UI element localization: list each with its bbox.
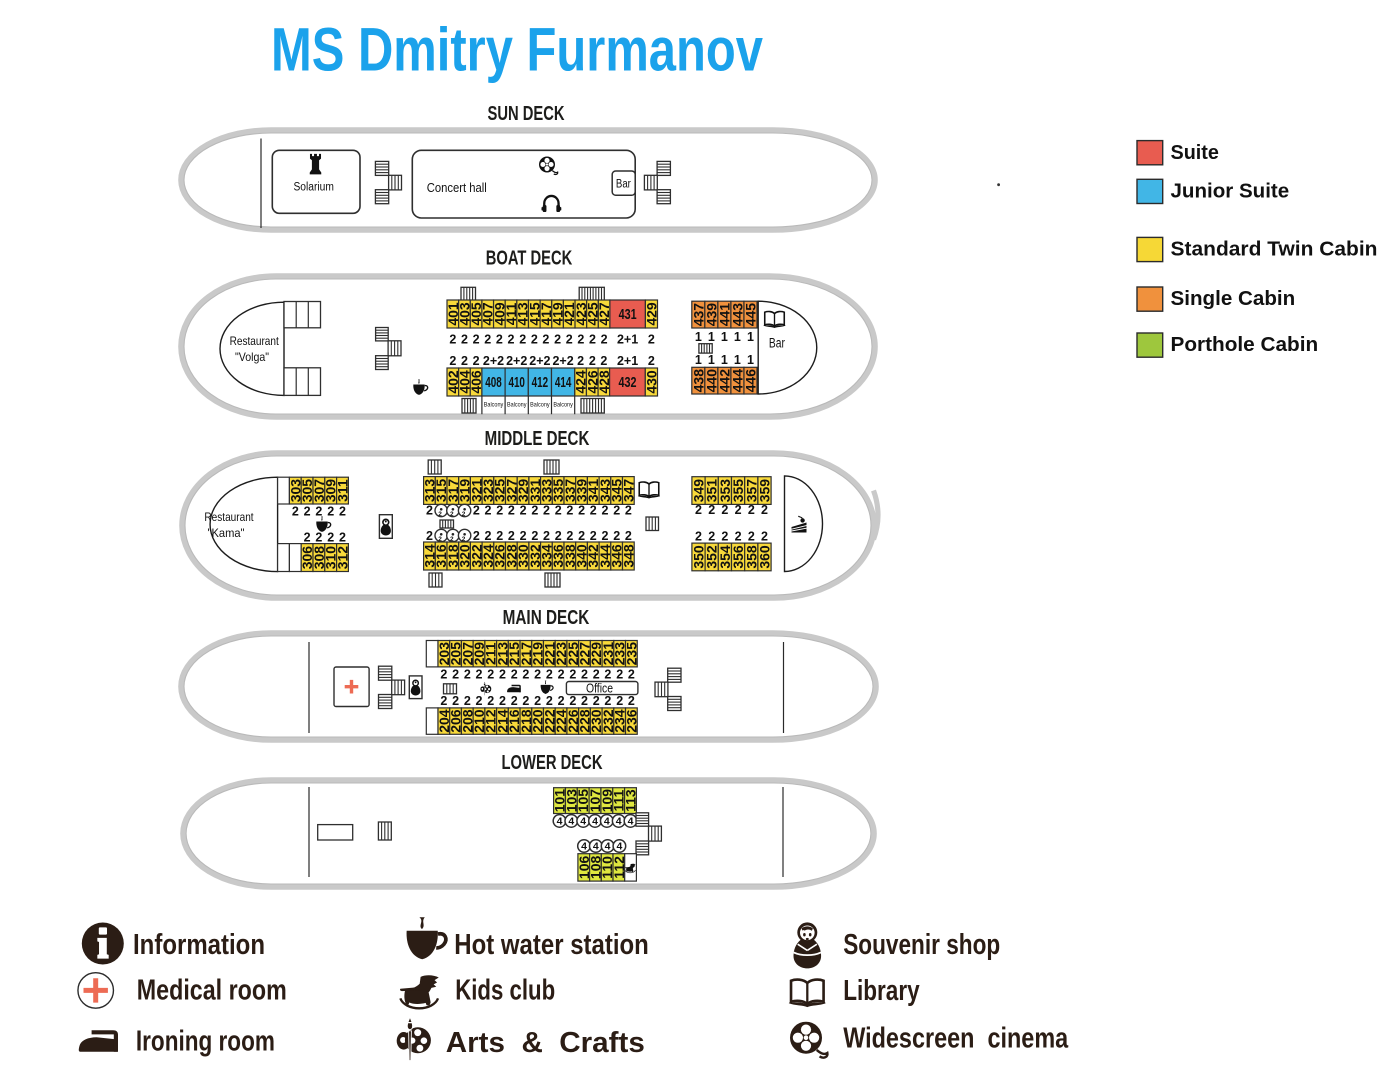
- svg-text:2+2: 2+2: [529, 354, 550, 368]
- svg-text:236: 236: [623, 709, 639, 733]
- svg-text:2: 2: [625, 529, 632, 543]
- svg-text:4: 4: [593, 841, 599, 853]
- svg-text:2: 2: [578, 529, 585, 543]
- svg-text:2: 2: [339, 531, 346, 545]
- svg-text:2: 2: [577, 333, 584, 347]
- svg-text:Restaurant: Restaurant: [204, 510, 254, 524]
- svg-text:Library: Library: [843, 975, 920, 1007]
- svg-text:408: 408: [485, 375, 502, 391]
- svg-text:2: 2: [426, 529, 433, 543]
- svg-text:2+1: 2+1: [617, 333, 638, 347]
- svg-text:2: 2: [327, 531, 334, 545]
- svg-text:2: 2: [555, 504, 562, 518]
- svg-text:2: 2: [499, 694, 506, 708]
- svg-text:430: 430: [643, 370, 659, 394]
- svg-text:1: 1: [734, 353, 741, 367]
- svg-text:4: 4: [592, 816, 598, 828]
- svg-text:2+1: 2+1: [617, 354, 638, 368]
- svg-text:2: 2: [304, 531, 311, 545]
- svg-text:Junior Suite: Junior Suite: [1171, 181, 1290, 203]
- svg-text:2: 2: [748, 530, 755, 544]
- svg-text:2: 2: [613, 529, 620, 543]
- svg-text:2: 2: [531, 529, 538, 543]
- svg-text:4: 4: [616, 841, 622, 853]
- svg-text:2: 2: [569, 668, 576, 682]
- svg-text:1: 1: [734, 330, 741, 344]
- svg-text:Ironing room: Ironing room: [136, 1025, 275, 1057]
- svg-text:2: 2: [593, 694, 600, 708]
- svg-text:1: 1: [747, 353, 754, 367]
- svg-text:Suite: Suite: [1171, 142, 1219, 164]
- svg-text:2: 2: [496, 529, 503, 543]
- svg-text:2: 2: [577, 354, 584, 368]
- svg-text:2: 2: [511, 694, 518, 708]
- svg-text:4: 4: [616, 816, 622, 828]
- svg-text:2: 2: [315, 531, 322, 545]
- svg-text:2: 2: [464, 694, 471, 708]
- svg-text:Concert hall: Concert hall: [427, 180, 487, 195]
- svg-text:Kids club: Kids club: [455, 974, 555, 1006]
- svg-text:2: 2: [590, 504, 597, 518]
- svg-text:2: 2: [648, 333, 655, 347]
- svg-text:235: 235: [623, 642, 639, 666]
- svg-text:Widescreen cinema: Widescreen cinema: [843, 1023, 1069, 1055]
- svg-text:2: 2: [440, 694, 447, 708]
- svg-text:312: 312: [335, 546, 351, 570]
- svg-text:Solarium: Solarium: [293, 181, 334, 193]
- svg-text:429: 429: [643, 302, 659, 326]
- svg-text:4: 4: [628, 816, 634, 828]
- svg-text:2: 2: [508, 504, 515, 518]
- svg-text:2: 2: [464, 668, 471, 682]
- svg-text:2: 2: [452, 694, 459, 708]
- svg-text:2: 2: [496, 333, 503, 347]
- svg-text:2: 2: [292, 505, 299, 519]
- svg-text:2: 2: [628, 668, 635, 682]
- svg-text:2: 2: [625, 504, 632, 518]
- svg-text:410: 410: [508, 375, 525, 391]
- svg-text:2: 2: [440, 668, 447, 682]
- svg-text:2: 2: [566, 333, 573, 347]
- svg-text:2: 2: [721, 503, 728, 517]
- svg-text:2: 2: [648, 354, 655, 368]
- svg-text:2: 2: [522, 668, 529, 682]
- svg-text:"Kama": "Kama": [208, 526, 245, 540]
- svg-text:MAIN DECK: MAIN DECK: [503, 607, 590, 629]
- svg-text:2: 2: [452, 668, 459, 682]
- svg-text:2: 2: [761, 530, 768, 544]
- svg-text:LOWER DECK: LOWER DECK: [502, 752, 603, 774]
- svg-text:2: 2: [581, 694, 588, 708]
- svg-text:432: 432: [619, 375, 637, 391]
- svg-text:2: 2: [555, 529, 562, 543]
- svg-text:Hot water station: Hot water station: [454, 929, 649, 961]
- svg-text:2: 2: [546, 668, 553, 682]
- svg-text:2: 2: [695, 530, 702, 544]
- svg-text:2: 2: [327, 505, 334, 519]
- svg-text:2: 2: [485, 529, 492, 543]
- svg-text:2: 2: [602, 529, 609, 543]
- svg-text:2: 2: [628, 694, 635, 708]
- svg-text:2: 2: [601, 333, 608, 347]
- svg-text:1: 1: [721, 353, 728, 367]
- svg-text:Restaurant: Restaurant: [230, 334, 280, 348]
- svg-text:2: 2: [589, 333, 596, 347]
- svg-text:2: 2: [487, 694, 494, 708]
- svg-text:Balcony: Balcony: [553, 402, 573, 409]
- svg-text:4: 4: [580, 816, 586, 828]
- svg-text:2: 2: [546, 694, 553, 708]
- svg-text:2: 2: [566, 504, 573, 518]
- svg-text:2+2: 2+2: [552, 354, 573, 368]
- svg-text:2+2: 2+2: [506, 354, 527, 368]
- svg-text:Balcony: Balcony: [507, 402, 527, 409]
- svg-text:2: 2: [461, 354, 468, 368]
- svg-text:SUN DECK: SUN DECK: [488, 103, 565, 125]
- svg-text:2: 2: [426, 504, 433, 518]
- svg-text:2: 2: [558, 668, 565, 682]
- svg-text:2: 2: [499, 668, 506, 682]
- svg-text:2: 2: [554, 333, 561, 347]
- svg-text:2: 2: [735, 530, 742, 544]
- svg-text:Bar: Bar: [616, 179, 631, 191]
- svg-text:2: 2: [473, 333, 480, 347]
- svg-text:2: 2: [520, 529, 527, 543]
- svg-text:2: 2: [708, 530, 715, 544]
- svg-text:2: 2: [604, 694, 611, 708]
- svg-text:"Volga": "Volga": [235, 350, 269, 364]
- svg-text:2: 2: [511, 668, 518, 682]
- svg-text:2: 2: [520, 504, 527, 518]
- svg-text:347: 347: [620, 479, 636, 503]
- svg-text:2: 2: [569, 694, 576, 708]
- svg-text:2: 2: [616, 668, 623, 682]
- svg-text:359: 359: [757, 479, 773, 503]
- svg-text:2: 2: [531, 504, 538, 518]
- svg-text:2: 2: [761, 503, 768, 517]
- svg-text:2: 2: [304, 505, 311, 519]
- svg-text:2: 2: [461, 333, 468, 347]
- svg-text:2: 2: [695, 503, 702, 517]
- svg-text:2: 2: [589, 354, 596, 368]
- svg-text:1: 1: [708, 330, 715, 344]
- svg-text:348: 348: [620, 544, 636, 568]
- svg-text:2: 2: [558, 694, 565, 708]
- svg-text:2: 2: [487, 668, 494, 682]
- svg-text:2: 2: [315, 505, 322, 519]
- svg-text:2: 2: [476, 694, 483, 708]
- svg-text:4: 4: [568, 816, 574, 828]
- svg-text:2: 2: [449, 354, 456, 368]
- svg-text:Balcony: Balcony: [530, 402, 550, 409]
- svg-text:2: 2: [519, 333, 526, 347]
- svg-text:360: 360: [757, 545, 773, 569]
- svg-text:2: 2: [450, 511, 454, 518]
- svg-text:1: 1: [695, 353, 702, 367]
- svg-text:Standard Twin Cabin: Standard Twin Cabin: [1171, 239, 1378, 261]
- svg-text:4: 4: [604, 816, 610, 828]
- svg-text:2: 2: [602, 504, 609, 518]
- svg-text:1: 1: [708, 353, 715, 367]
- svg-text:Porthole Cabin: Porthole Cabin: [1171, 334, 1319, 356]
- svg-text:412: 412: [532, 375, 549, 391]
- svg-text:BOAT DECK: BOAT DECK: [486, 248, 573, 270]
- svg-text:4: 4: [605, 841, 611, 853]
- svg-text:1: 1: [721, 330, 728, 344]
- svg-text:2: 2: [543, 504, 550, 518]
- svg-text:2: 2: [438, 511, 442, 518]
- svg-text:113: 113: [623, 789, 639, 812]
- svg-text:MIDDLE DECK: MIDDLE DECK: [485, 428, 590, 450]
- svg-text:2: 2: [600, 354, 607, 368]
- svg-text:Balcony: Balcony: [484, 402, 504, 409]
- svg-text:2: 2: [473, 529, 480, 543]
- svg-text:2: 2: [542, 333, 549, 347]
- svg-text:2: 2: [748, 503, 755, 517]
- svg-text:2: 2: [613, 504, 620, 518]
- svg-text:2: 2: [449, 333, 456, 347]
- svg-text:2: 2: [531, 333, 538, 347]
- svg-text:Souvenir shop: Souvenir shop: [843, 929, 1000, 961]
- svg-text:Medical room: Medical room: [137, 975, 287, 1007]
- svg-text:2: 2: [508, 333, 515, 347]
- svg-text:2: 2: [534, 694, 541, 708]
- svg-text:2: 2: [708, 503, 715, 517]
- svg-text:2: 2: [508, 529, 515, 543]
- svg-text:1: 1: [695, 330, 702, 344]
- svg-text:2: 2: [578, 504, 585, 518]
- svg-text:Information: Information: [133, 929, 265, 961]
- svg-text:2: 2: [566, 529, 573, 543]
- svg-text:4: 4: [557, 816, 563, 828]
- svg-text:414: 414: [555, 375, 572, 391]
- svg-text:2: 2: [462, 511, 466, 518]
- svg-text:2: 2: [616, 694, 623, 708]
- svg-text:2: 2: [473, 354, 480, 368]
- svg-text:445: 445: [743, 303, 759, 327]
- svg-text:MS Dmitry Furmanov: MS Dmitry Furmanov: [271, 16, 763, 84]
- svg-text:2: 2: [534, 668, 541, 682]
- svg-text:2: 2: [473, 504, 480, 518]
- svg-text:311: 311: [335, 479, 351, 502]
- svg-text:Single Cabin: Single Cabin: [1171, 288, 1296, 310]
- svg-text:2: 2: [522, 694, 529, 708]
- svg-text:2: 2: [485, 504, 492, 518]
- svg-text:2: 2: [735, 503, 742, 517]
- svg-text:2: 2: [721, 530, 728, 544]
- svg-text:Arts & Crafts: Arts & Crafts: [446, 1027, 645, 1059]
- svg-text:2+2: 2+2: [483, 354, 504, 368]
- svg-text:2: 2: [590, 529, 597, 543]
- svg-text:2: 2: [543, 529, 550, 543]
- svg-text:2: 2: [496, 504, 503, 518]
- svg-text:2: 2: [339, 505, 346, 519]
- svg-text:2: 2: [484, 333, 491, 347]
- svg-text:Bar: Bar: [769, 336, 785, 351]
- svg-text:2: 2: [476, 668, 483, 682]
- svg-text:431: 431: [619, 307, 637, 323]
- svg-text:4: 4: [581, 841, 587, 853]
- svg-text:446: 446: [743, 369, 759, 393]
- svg-text:1: 1: [747, 330, 754, 344]
